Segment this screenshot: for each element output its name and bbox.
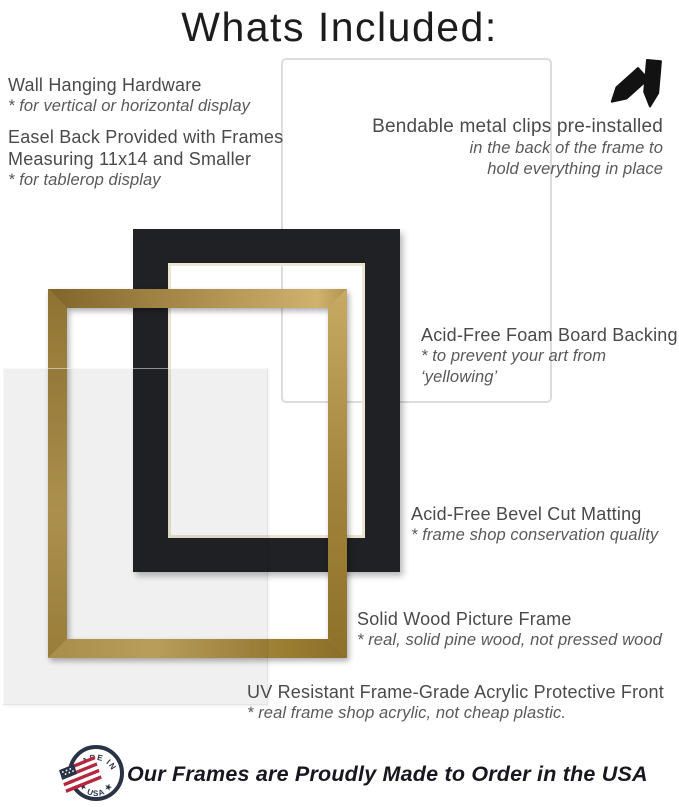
annotation-wall-hanging: Wall Hanging Hardware * for vertical or …	[8, 74, 250, 117]
wall-hanging-note: * for vertical or horizontal display	[8, 96, 250, 117]
wood-frame-note: * real, solid pine wood, not pressed woo…	[357, 630, 662, 651]
wall-hanging-heading: Wall Hanging Hardware	[8, 74, 250, 96]
infographic-page: Whats Included: Wall Hanging Hardware * …	[0, 0, 679, 807]
foam-board-note: * to prevent your art from ‘yellowing’	[421, 346, 679, 388]
annotation-easel-back: Easel Back Provided with Frames Measurin…	[8, 126, 283, 191]
annotation-foam-board: Acid-Free Foam Board Backing * to preven…	[421, 324, 679, 388]
page-title: Whats Included:	[0, 0, 679, 54]
annotation-metal-clips: Bendable metal clips pre-installed in th…	[372, 116, 663, 180]
acrylic-front-note: * real frame shop acrylic, not cheap pla…	[247, 703, 664, 724]
metal-clips-note-line2: hold everything in place	[372, 159, 663, 180]
metal-clip-icon	[643, 60, 661, 107]
matting-heading: Acid-Free Bevel Cut Matting	[411, 503, 658, 525]
metal-clips-note-line1: in the back of the frame to	[372, 138, 663, 159]
acrylic-sheet-graphic	[3, 368, 268, 705]
metal-clips-heading: Bendable metal clips pre-installed	[372, 116, 663, 138]
acrylic-front-heading: UV Resistant Frame-Grade Acrylic Protect…	[247, 681, 664, 703]
annotation-acrylic-front: UV Resistant Frame-Grade Acrylic Protect…	[247, 681, 664, 724]
easel-back-heading-line1: Easel Back Provided with Frames	[8, 126, 283, 148]
annotation-wood-frame: Solid Wood Picture Frame * real, solid p…	[357, 608, 662, 651]
matting-note: * frame shop conservation quality	[411, 525, 658, 546]
annotation-matting: Acid-Free Bevel Cut Matting * frame shop…	[411, 503, 658, 546]
footer-tagline: Our Frames are Proudly Made to Order in …	[127, 762, 648, 787]
made-in-usa-badge-icon: ★ MADE IN ★ ★ USA ★	[54, 738, 134, 806]
gold-frame-top-rail	[48, 289, 347, 308]
wood-frame-heading: Solid Wood Picture Frame	[357, 608, 662, 630]
easel-back-heading-line2: Measuring 11x14 and Smaller	[8, 148, 283, 170]
easel-back-note: * for tablerop display	[8, 170, 283, 191]
gold-frame-right-rail	[328, 289, 347, 658]
foam-board-heading: Acid-Free Foam Board Backing	[421, 324, 679, 346]
metal-clip-icon	[607, 68, 648, 107]
